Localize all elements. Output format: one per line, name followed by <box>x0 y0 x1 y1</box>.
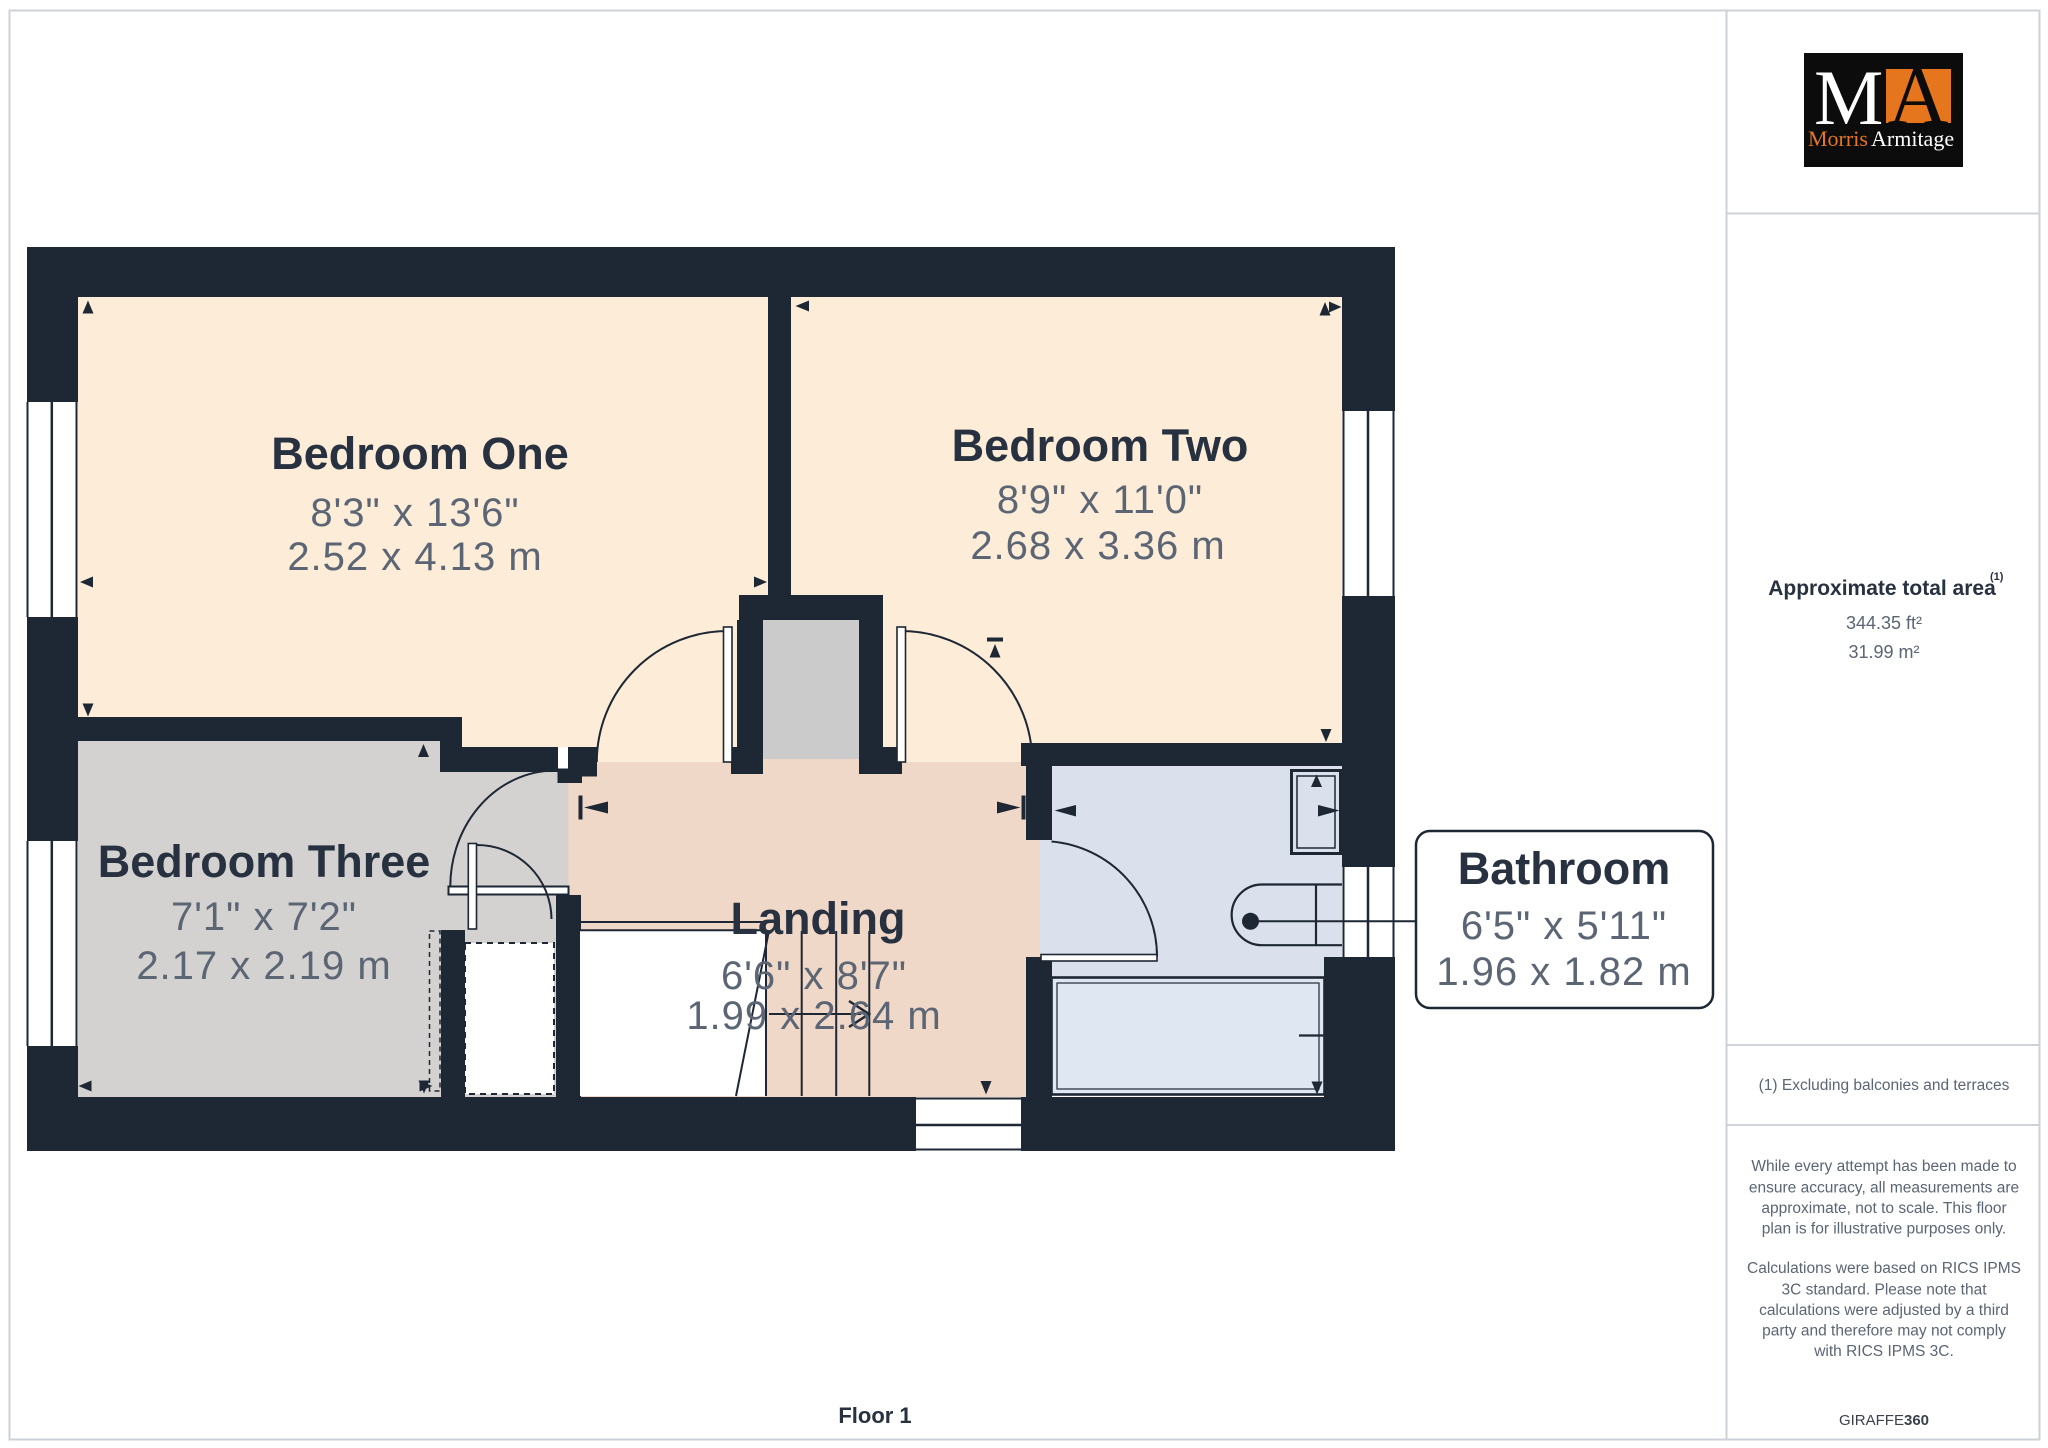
svg-text:GIRAFFE360: GIRAFFE360 <box>1839 1412 1929 1429</box>
svg-text:While every attempt has been m: While every attempt has been made to <box>1751 1158 2016 1175</box>
svg-text:(1) Excluding balconies and te: (1) Excluding balconies and terraces <box>1759 1077 2010 1094</box>
svg-text:Approximate total area: Approximate total area <box>1768 577 1996 600</box>
svg-text:2.68 x 3.36 m: 2.68 x 3.36 m <box>970 524 1225 568</box>
svg-text:Bathroom: Bathroom <box>1458 843 1671 894</box>
svg-text:party and therefore may not co: party and therefore may not comply <box>1762 1323 2006 1340</box>
svg-text:Morris: Morris <box>1808 126 1868 151</box>
svg-text:Armitage: Armitage <box>1871 126 1954 151</box>
svg-text:calculations were adjusted by: calculations were adjusted by a third <box>1759 1302 2009 1319</box>
svg-text:ensure accuracy, all measureme: ensure accuracy, all measurements are <box>1749 1180 2019 1197</box>
svg-text:Bedroom One: Bedroom One <box>271 428 569 479</box>
svg-text:1.96 x 1.82 m: 1.96 x 1.82 m <box>1436 950 1691 994</box>
svg-text:7'1" x 7'2": 7'1" x 7'2" <box>171 895 357 939</box>
svg-text:Floor 1: Floor 1 <box>838 1403 911 1428</box>
svg-text:344.35 ft²: 344.35 ft² <box>1846 613 1922 633</box>
svg-text:6'5" x 5'11": 6'5" x 5'11" <box>1461 904 1667 948</box>
svg-text:Calculations were based on RIC: Calculations were based on RICS IPMS <box>1747 1260 2021 1277</box>
svg-text:Bedroom Three: Bedroom Three <box>98 836 431 887</box>
svg-text:6'6" x 8'7": 6'6" x 8'7" <box>721 954 907 998</box>
svg-text:with RICS IPMS 3C.: with RICS IPMS 3C. <box>1813 1343 1954 1360</box>
svg-text:Bedroom Two: Bedroom Two <box>952 420 1249 471</box>
svg-text:3C standard. Please note that: 3C standard. Please note that <box>1781 1282 1987 1299</box>
svg-text:8'3" x 13'6": 8'3" x 13'6" <box>310 491 519 535</box>
svg-text:8'9" x 11'0": 8'9" x 11'0" <box>997 478 1203 522</box>
svg-text:1.99 x 2.64 m: 1.99 x 2.64 m <box>686 994 941 1038</box>
svg-text:Landing: Landing <box>731 893 906 944</box>
svg-text:approximate, not to scale. Thi: approximate, not to scale. This floor <box>1761 1200 2006 1217</box>
svg-text:2.52 x 4.13 m: 2.52 x 4.13 m <box>287 535 542 579</box>
svg-text:plan is for illustrative purpo: plan is for illustrative purposes only. <box>1762 1221 2006 1238</box>
svg-text:(1): (1) <box>1990 571 2004 583</box>
svg-text:31.99 m²: 31.99 m² <box>1848 642 1919 662</box>
svg-text:2.17 x 2.19 m: 2.17 x 2.19 m <box>136 944 391 988</box>
